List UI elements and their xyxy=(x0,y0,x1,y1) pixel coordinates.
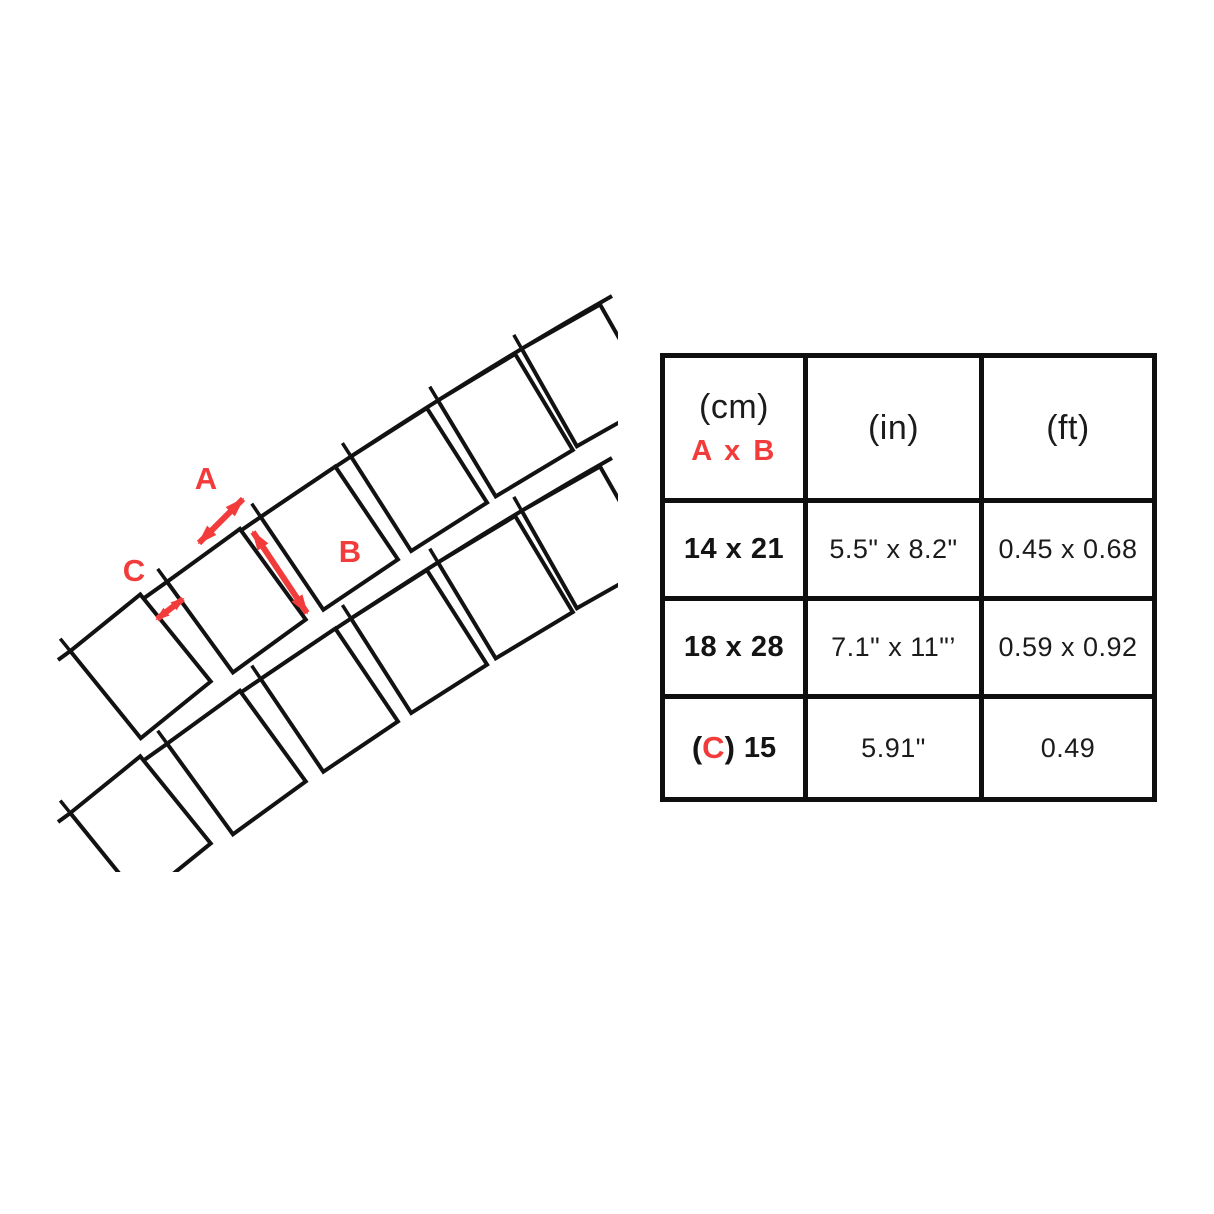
size-in-value: 5.91" xyxy=(861,733,926,764)
table-row-1-in: 5.5" x 8.2" xyxy=(808,503,984,601)
a-x-b-label: A x B xyxy=(691,435,777,468)
in-unit-label: (in) xyxy=(868,409,919,448)
table-row-3-ft: 0.49 xyxy=(984,699,1152,797)
size-in-value: 5.5" x 8.2" xyxy=(829,534,957,565)
table-row-2-in: 7.1" x 11"’ xyxy=(808,601,984,699)
size-chart-image: A B C (cm) A x B (in) (ft) 14 x 21 5.5" … xyxy=(0,0,1214,1214)
paren-close: ) xyxy=(725,730,735,766)
table-row-3-in: 5.91" xyxy=(808,699,984,797)
table-row-3-cm: (C) 15 xyxy=(665,699,808,797)
dimension-label-c: C xyxy=(123,553,145,588)
header-cell-in: (in) xyxy=(808,358,984,503)
dimension-arrow-c xyxy=(157,599,183,619)
paren-open: ( xyxy=(692,730,702,766)
dimension-label-b: B xyxy=(339,534,361,569)
ft-unit-label: (ft) xyxy=(1046,409,1090,448)
table-row-2-ft: 0.59 x 0.92 xyxy=(984,601,1152,699)
edging-strips xyxy=(58,291,630,900)
dimension-label-a: A xyxy=(195,461,217,496)
table-row-1-cm: 14 x 21 xyxy=(665,503,808,601)
table-row-1-ft: 0.45 x 0.68 xyxy=(984,503,1152,601)
c-dimension-letter: C xyxy=(702,730,724,766)
cm-unit-label: (cm) xyxy=(699,388,769,427)
header-cell-cm: (cm) A x B xyxy=(665,358,808,503)
size-ft-value: 0.45 x 0.68 xyxy=(998,534,1137,565)
table-row-2-cm: 18 x 28 xyxy=(665,601,808,699)
size-ft-value: 0.59 x 0.92 xyxy=(998,632,1137,663)
edging-diagram: A B C xyxy=(30,260,630,900)
size-cm-value: 18 x 28 xyxy=(684,631,784,664)
size-in-value: 7.1" x 11"’ xyxy=(831,632,956,663)
header-cell-ft: (ft) xyxy=(984,358,1152,503)
size-cm-value: 14 x 21 xyxy=(684,533,784,566)
size-ft-value: 0.49 xyxy=(1041,733,1096,764)
size-cm-value: 15 xyxy=(744,732,776,765)
size-table: (cm) A x B (in) (ft) 14 x 21 5.5" x 8.2"… xyxy=(660,353,1157,802)
